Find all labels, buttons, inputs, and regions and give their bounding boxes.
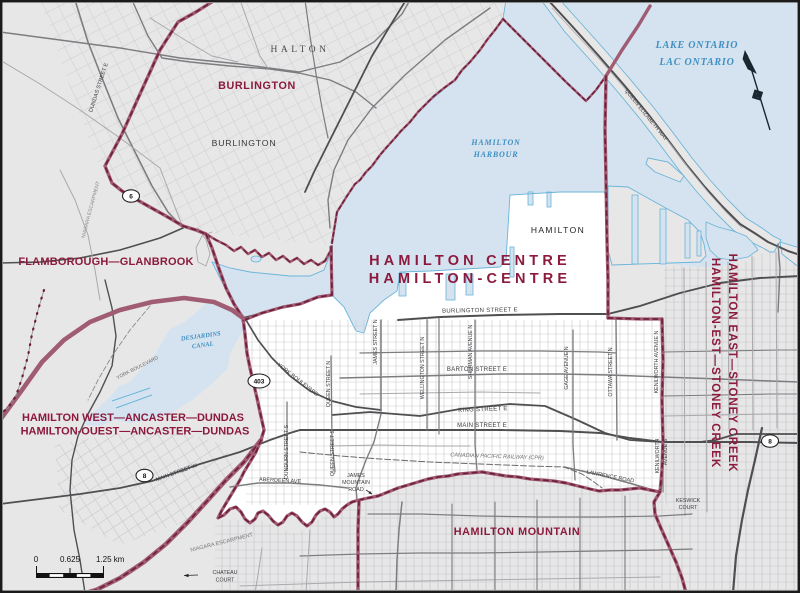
- svg-text:8: 8: [768, 438, 772, 445]
- svg-text:HAMILTON: HAMILTON: [531, 225, 585, 235]
- svg-text:HAMILTON-OUEST—ANCASTER—DUNDAS: HAMILTON-OUEST—ANCASTER—DUNDAS: [21, 426, 250, 438]
- svg-text:HAMILTON MOUNTAIN: HAMILTON MOUNTAIN: [454, 526, 581, 538]
- svg-text:GAGE AVENUE N: GAGE AVENUE N: [564, 346, 570, 389]
- svg-text:KENILWORTH AVENUE N: KENILWORTH AVENUE N: [654, 330, 660, 393]
- svg-text:1.25 km: 1.25 km: [96, 555, 125, 564]
- svg-text:0: 0: [34, 555, 39, 564]
- svg-text:HARBOUR: HARBOUR: [473, 150, 519, 159]
- svg-text:MAIN STREET E: MAIN STREET E: [457, 423, 507, 429]
- svg-text:COURT: COURT: [679, 505, 699, 511]
- svg-text:8: 8: [143, 473, 147, 480]
- svg-text:HAMILTON CENTRE: HAMILTON CENTRE: [369, 253, 571, 269]
- svg-text:HAMILTON: HAMILTON: [470, 138, 521, 147]
- svg-text:FLAMBOROUGH—GLANBROOK: FLAMBOROUGH—GLANBROOK: [18, 256, 193, 268]
- svg-text:OTTAWA STREET N: OTTAWA STREET N: [608, 347, 614, 396]
- svg-text:BURLINGTON: BURLINGTON: [218, 80, 296, 92]
- svg-text:0.625: 0.625: [60, 555, 81, 564]
- svg-text:6: 6: [129, 193, 133, 200]
- svg-text:HAMILTON EAST—STONEY CREEK: HAMILTON EAST—STONEY CREEK: [726, 254, 738, 473]
- svg-text:JAMES: JAMES: [347, 473, 365, 479]
- svg-text:LAKE ONTARIO: LAKE ONTARIO: [655, 40, 739, 51]
- svg-text:LAC ONTARIO: LAC ONTARIO: [658, 57, 734, 68]
- svg-text:MOUNTAIN: MOUNTAIN: [342, 480, 370, 486]
- svg-text:CHATEAU: CHATEAU: [213, 570, 238, 576]
- svg-text:BURLINGTON: BURLINGTON: [212, 138, 277, 148]
- svg-text:KENILWORTH: KENILWORTH: [655, 438, 661, 473]
- svg-text:HAMILTON WEST—ANCASTER—DUNDAS: HAMILTON WEST—ANCASTER—DUNDAS: [22, 412, 244, 424]
- svg-text:QUEEN STREET N: QUEEN STREET N: [326, 361, 332, 408]
- svg-text:HALTON: HALTON: [270, 45, 329, 55]
- svg-text:HAMILTON-CENTRE: HAMILTON-CENTRE: [369, 271, 572, 287]
- svg-text:403: 403: [254, 378, 265, 385]
- svg-text:WELLINGTON STREET N: WELLINGTON STREET N: [420, 337, 426, 400]
- svg-text:BARTON STREET E: BARTON STREET E: [447, 367, 507, 373]
- svg-text:HAMILTON-EST—STONEY CREEK: HAMILTON-EST—STONEY CREEK: [709, 258, 721, 468]
- svg-text:ROAD: ROAD: [348, 487, 363, 493]
- svg-text:DUNDURN STREET S: DUNDURN STREET S: [284, 425, 290, 480]
- svg-text:SHERMAN AVENUE N: SHERMAN AVENUE N: [468, 325, 474, 380]
- svg-text:AVENUE S: AVENUE S: [663, 438, 669, 465]
- svg-text:JAMES STREET N: JAMES STREET N: [373, 319, 379, 364]
- svg-text:QUEEN STREET S: QUEEN STREET S: [330, 429, 336, 476]
- svg-text:KESWICK: KESWICK: [676, 498, 701, 504]
- svg-text:COURT: COURT: [216, 578, 236, 584]
